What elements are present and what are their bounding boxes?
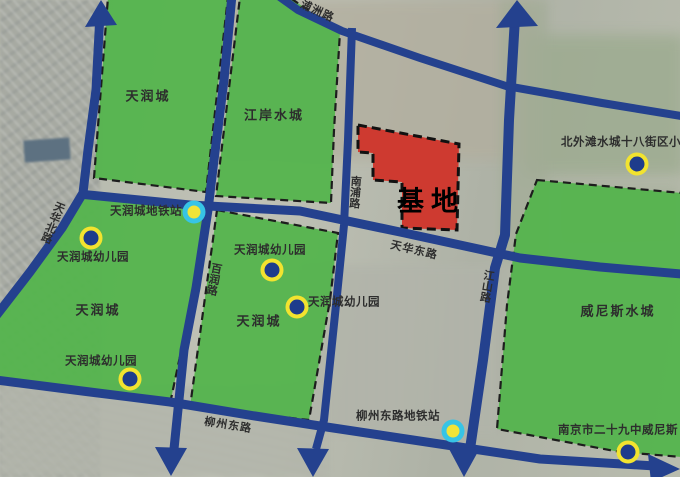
school-marker-icon	[261, 259, 284, 282]
region-label-tianrun-w: 天润城	[75, 304, 120, 317]
arrow-down-bairun	[155, 447, 187, 476]
arrow-up-jiangshan	[496, 0, 538, 28]
arrow-down-nanpu	[297, 448, 329, 477]
metro-station-icon	[183, 201, 206, 224]
school-marker-icon	[119, 368, 142, 391]
planning-map: 天润城 江岸水城 天润城 天润城 威尼斯水城 基地 浦洲路 天华北路 百润路 南…	[0, 0, 680, 477]
school-label-2: 天润城幼儿园	[65, 356, 137, 368]
region-label-tianrun-nw: 天润城	[125, 90, 170, 103]
school-label-6: 南京市二十九中威尼斯	[558, 425, 678, 437]
region-label-tianrun-c: 天润城	[236, 315, 281, 328]
school-marker-icon	[617, 441, 640, 464]
region-label-jiangan: 江岸水城	[244, 109, 304, 122]
region-tianrun-city-west	[0, 197, 207, 399]
road-label-nanpu: 南浦路	[347, 175, 360, 209]
school-marker-icon	[626, 153, 649, 176]
region-jiangan-water-city	[216, 0, 340, 203]
region-label-venice: 威尼斯水城	[580, 305, 655, 318]
metro-label-tianrun: 天润城地铁站	[110, 206, 182, 218]
school-label-1: 天润城幼儿园	[57, 252, 129, 264]
site-label: 基地	[397, 189, 465, 216]
metro-label-liuzhou: 柳州东路地铁站	[356, 411, 440, 423]
school-label-5: 北外滩水城十八街区小	[561, 137, 680, 149]
school-label-3: 天润城幼儿园	[234, 245, 306, 257]
metro-station-icon	[442, 420, 465, 443]
region-venice-water-city	[497, 180, 680, 457]
school-marker-icon	[286, 296, 309, 319]
arrow-down-jiangshan	[448, 447, 480, 477]
school-label-4: 天润城幼儿园	[308, 297, 380, 309]
school-marker-icon	[80, 227, 103, 250]
